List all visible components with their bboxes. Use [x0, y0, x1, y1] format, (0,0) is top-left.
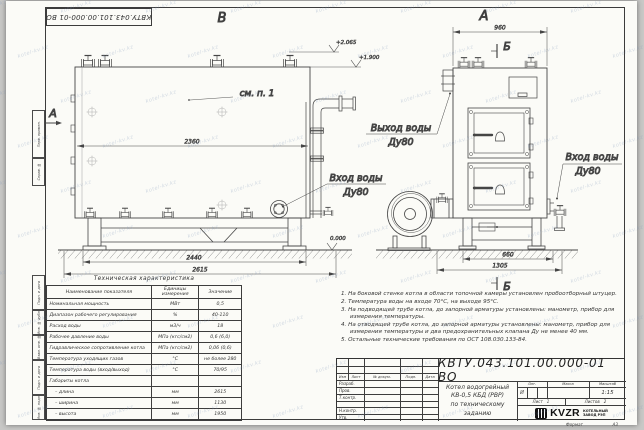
top-inverted-doc-number-stamp: КВТУ.043.101.00.000-01 ВО: [46, 8, 152, 26]
product-title-line1: Котел водогрейный: [446, 384, 509, 393]
spec-row: Расход водым3/ч18: [47, 321, 241, 332]
kvzr-logo-icon: [535, 408, 547, 419]
sheets-value: 2: [604, 399, 607, 404]
margin-label: Подп. и дата: [37, 281, 41, 305]
col-data: Дата: [422, 373, 438, 380]
product-title-line3: по техническому заданию: [438, 401, 517, 418]
margin-box-perv-primen: Перв. примен.: [32, 110, 45, 158]
sheets-cell: Листов 2: [565, 398, 626, 405]
margin-label: Взам. инв. №: [37, 335, 41, 359]
spec-row: Гидравлическое сопротивление котлаМПа (к…: [47, 343, 241, 354]
spec-row: – высотамм1950: [47, 409, 241, 420]
sig-razrab: Разраб.: [337, 380, 364, 387]
margin-label: Инв. № подл.: [37, 395, 41, 420]
spec-table: Наименование показателяЕдиницы измерения…: [46, 285, 242, 421]
technical-notes: 1. На боковой стенке котла в области топ…: [341, 291, 625, 345]
technical-characteristics: Техническая характеристика Наименование …: [46, 276, 242, 421]
margin-label: Подп. и дата: [37, 366, 41, 390]
col-list: Лист: [348, 373, 364, 380]
format-value: А3: [612, 422, 618, 427]
sheet-value: 1: [547, 399, 550, 404]
margin-label: Инв. № дубл.: [37, 310, 41, 334]
lit-value: И: [517, 387, 527, 398]
note-2: 2. Температура воды на входе 70°С, на вы…: [341, 299, 625, 306]
note-5: 5. Остальные технические требования по О…: [341, 337, 625, 344]
note-1: 1. На боковой стенке котла в области топ…: [341, 291, 625, 298]
doc-number-inverted: КВТУ.043.101.00.000-01 ВО: [46, 13, 151, 21]
spec-col-header: Наименование показателя: [47, 286, 152, 299]
margin-box-vzam-inv: Взам. инв. №: [32, 335, 45, 360]
spec-row: Температура уходящих газов°Сне более 280: [47, 354, 241, 365]
sig-utv: Утв.: [337, 414, 364, 421]
spec-row: – длинамм2615: [47, 387, 241, 398]
col-izm: Изм: [337, 373, 348, 380]
spec-table-title: Техническая характеристика: [46, 276, 242, 285]
scanned-engineering-drawing: { "watermark": "kotel-kv.kz", "sheet": {…: [0, 0, 644, 430]
mass-label: Масса: [547, 381, 589, 387]
product-title-line2: КВ-0,5 КБД (РВР): [451, 392, 504, 401]
spec-row: Номинальная мощностьМВт0,5: [47, 299, 241, 310]
format-label: Формат А3: [566, 422, 618, 427]
spec-col-header: Единицы измерения: [152, 286, 200, 299]
sheet-cell: Лист 1: [517, 398, 565, 405]
sig-prov: Пров.: [337, 387, 364, 394]
sheets-label: Листов: [585, 399, 600, 404]
note-4: 4. На отводящей трубе котла, до запорной…: [341, 322, 625, 336]
margin-box-inv-podl: Инв. № подл.: [32, 395, 45, 420]
spec-row: Температура воды (вход/выход)°С70/95: [47, 365, 241, 376]
margin-box-sprav: Справ. №: [32, 158, 45, 186]
margin-box-podp-data-1: Подп. и дата: [32, 275, 45, 310]
sheet-label: Лист: [533, 399, 543, 404]
margin-box-inv-dubl: Инв. № дубл.: [32, 310, 45, 335]
spec-row: Рабочее давление водыМПа (кгс/см2)0,6 (6…: [47, 332, 241, 343]
margin-label: Перв. примен.: [37, 121, 41, 147]
kvzr-logo-text: KVZR: [550, 407, 580, 419]
margin-box-podp-data-2: Подп. и дата: [32, 360, 45, 395]
company-logo-cell: KVZR КОТЕЛЬНЫЙ ЗАВОД РЭП: [517, 405, 626, 421]
title-block: КВТУ.043.101.00.000-01 ВО Изм Лист № док…: [336, 358, 625, 420]
spec-row: Габариты котла: [47, 376, 241, 387]
sig-nkontr: Н.контр.: [337, 407, 364, 414]
note-3: 3. На подводящей трубе котла, до запорно…: [341, 307, 625, 321]
col-dokum: № докум.: [364, 373, 400, 380]
sig-tkontr: Т.контр.: [337, 394, 364, 401]
doc-number: КВТУ.043.101.00.000-01 ВО: [438, 359, 626, 381]
company-name-line2: ЗАВОД РЭП: [583, 413, 608, 417]
margin-label: Справ. №: [37, 163, 41, 180]
col-podp: Подп.: [400, 373, 422, 380]
spec-col-header: Значение: [199, 286, 241, 299]
spec-row: – ширинамм1130: [47, 398, 241, 409]
product-title: Котел водогрейный КВ-0,5 КБД (РВР) по те…: [438, 381, 517, 421]
spec-row: Диапазон рабочего регулирования%40-110: [47, 310, 241, 321]
format-word: Формат: [566, 422, 583, 427]
company-name: КОТЕЛЬНЫЙ ЗАВОД РЭП: [583, 409, 608, 417]
scale-value: 1:15: [589, 387, 626, 398]
